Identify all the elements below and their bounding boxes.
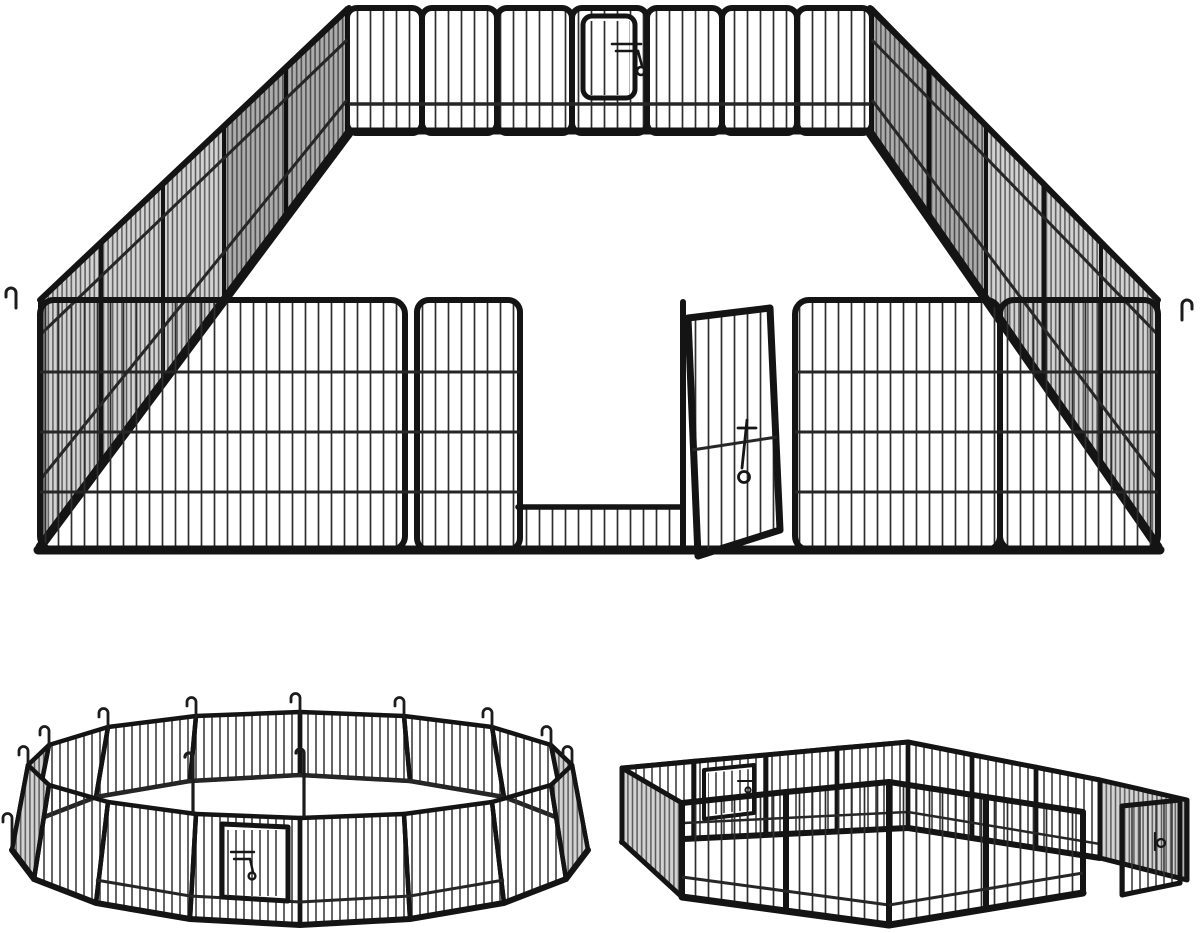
pen-panel xyxy=(682,792,786,911)
pen-panel xyxy=(722,8,797,133)
pen-panel xyxy=(497,8,572,133)
back-wall xyxy=(344,8,875,133)
pen-panel xyxy=(300,712,410,781)
pen-panel xyxy=(417,300,520,550)
playpen-product-image xyxy=(0,0,1200,933)
pen-panel xyxy=(797,8,872,133)
pen-panel xyxy=(404,802,504,919)
circle-gate-door xyxy=(222,824,288,901)
gate-door-bars xyxy=(588,21,630,95)
product-photo xyxy=(0,0,1200,933)
pen-panel xyxy=(40,300,405,550)
l-front-left-wall xyxy=(682,782,889,925)
pen-panel xyxy=(190,712,300,781)
pen-panel xyxy=(795,300,1000,550)
l-open-door xyxy=(1122,800,1180,895)
back-gate-door xyxy=(583,16,645,98)
pen-panel xyxy=(1000,300,1158,550)
doorway-bottom-band xyxy=(518,507,682,548)
pen-panel xyxy=(300,814,410,925)
pen-panel xyxy=(647,8,722,133)
pen-panel xyxy=(96,802,196,919)
pen-panel xyxy=(347,8,422,133)
open-gate-door xyxy=(688,308,780,556)
gate-door-bars xyxy=(227,830,283,896)
pen-panel xyxy=(422,8,497,133)
